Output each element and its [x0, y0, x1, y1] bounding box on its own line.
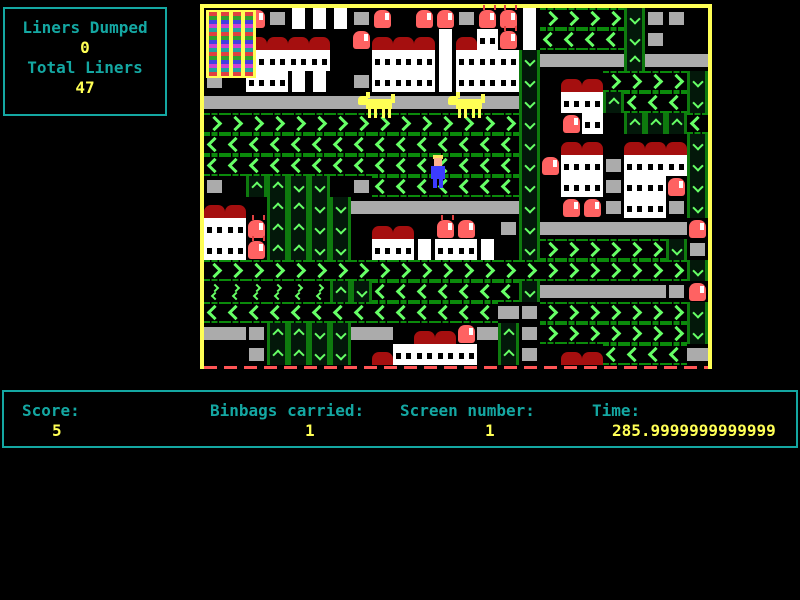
white-column-tile	[288, 71, 309, 92]
conveyor-tile	[666, 218, 687, 239]
white-column-tile	[435, 29, 456, 50]
mini-arrow-tile	[246, 281, 267, 302]
arrow-left-tile	[372, 302, 393, 323]
conveyor-segment-tile	[246, 344, 267, 365]
white-column-tile	[288, 8, 309, 29]
conveyor-segment-tile	[456, 8, 477, 29]
arrow-down-tile	[687, 92, 708, 113]
roof-tile	[372, 218, 393, 239]
arrow-left-tile	[246, 155, 267, 176]
arrow-left-tile	[393, 176, 414, 197]
arrow-left-tile	[414, 281, 435, 302]
arrow-down-tile	[624, 29, 645, 50]
arrow-left-tile	[666, 92, 687, 113]
conveyor-tile	[687, 344, 708, 365]
arrow-down-tile	[687, 176, 708, 197]
roof-tile	[309, 29, 330, 50]
bin-tile	[456, 218, 477, 239]
arrow-left-tile	[498, 155, 519, 176]
roof-tile	[582, 71, 603, 92]
arrow-down-tile	[519, 281, 540, 302]
arrow-down-tile	[519, 239, 540, 260]
arrow-down-tile	[519, 50, 540, 71]
arrow-left-tile	[351, 155, 372, 176]
total-liners-label: Total Liners	[5, 58, 165, 78]
house-window-tile	[582, 155, 603, 176]
arrow-right-tile	[645, 71, 666, 92]
house-window-tile	[393, 71, 414, 92]
house-window-tile	[456, 239, 477, 260]
conveyor-tile	[309, 92, 330, 113]
arrow-right-tile	[645, 239, 666, 260]
time-label: Time:	[592, 401, 640, 420]
house-window-tile	[435, 344, 456, 365]
arrow-down-tile	[624, 8, 645, 29]
conveyor-tile	[204, 92, 225, 113]
mini-arrow-tile	[309, 281, 330, 302]
arrow-down-tile	[309, 197, 330, 218]
arrow-down-tile	[309, 218, 330, 239]
arrow-left-tile	[288, 155, 309, 176]
arrow-right-tile	[582, 8, 603, 29]
arrow-down-tile	[519, 113, 540, 134]
arrow-down-tile	[309, 176, 330, 197]
bin-tile	[456, 323, 477, 344]
conveyor-segment-tile	[246, 323, 267, 344]
arrow-left-tile	[603, 344, 624, 365]
arrow-right-tile	[288, 260, 309, 281]
arrow-down-tile	[687, 260, 708, 281]
arrow-down-tile	[309, 323, 330, 344]
conveyor-segment-tile	[603, 197, 624, 218]
roof-tile	[561, 134, 582, 155]
liners-dumped-value: 0	[5, 38, 165, 58]
arrow-up-tile	[288, 218, 309, 239]
liners-dumped-label: Liners Dumped	[5, 18, 165, 38]
house-window-tile	[645, 197, 666, 218]
arrow-down-tile	[519, 176, 540, 197]
arrow-left-tile	[603, 29, 624, 50]
conveyor-tile	[498, 197, 519, 218]
arrow-right-tile	[561, 239, 582, 260]
arrow-up-tile	[666, 113, 687, 134]
house-window-tile	[477, 29, 498, 50]
bin-tile	[540, 155, 561, 176]
arrow-down-tile	[330, 323, 351, 344]
conveyor-tile	[603, 281, 624, 302]
arrow-left-tile	[246, 134, 267, 155]
house-window-tile	[267, 71, 288, 92]
arrow-right-tile	[561, 302, 582, 323]
house-window-tile	[645, 176, 666, 197]
roof-tile	[225, 197, 246, 218]
player-body	[431, 166, 445, 179]
roof-tile	[456, 29, 477, 50]
arrow-right-tile	[246, 260, 267, 281]
arrow-right-tile	[561, 260, 582, 281]
house-window-tile	[225, 239, 246, 260]
arrow-left-tile	[435, 281, 456, 302]
arrow-left-tile	[477, 155, 498, 176]
arrow-right-tile	[288, 113, 309, 134]
arrow-down-tile	[687, 302, 708, 323]
arrow-left-tile	[330, 155, 351, 176]
white-column-tile	[414, 239, 435, 260]
roof-tile	[561, 71, 582, 92]
arrow-left-tile	[267, 302, 288, 323]
arrow-left-tile	[435, 134, 456, 155]
roof-tile	[372, 344, 393, 365]
arrow-right-tile	[204, 113, 225, 134]
arrow-left-tile	[267, 134, 288, 155]
arrow-down-tile	[666, 239, 687, 260]
conveyor-segment-tile	[519, 344, 540, 365]
house-window-tile	[624, 176, 645, 197]
conveyor-tile	[582, 218, 603, 239]
arrow-right-tile	[540, 260, 561, 281]
roof-tile	[582, 344, 603, 365]
arrow-right-tile	[624, 260, 645, 281]
arrow-up-tile	[645, 113, 666, 134]
arrow-left-tile	[456, 176, 477, 197]
conveyor-segment-tile	[687, 239, 708, 260]
conveyor-tile	[603, 218, 624, 239]
player-sprite	[429, 155, 447, 188]
roof-tile	[393, 29, 414, 50]
arrow-left-tile	[330, 134, 351, 155]
white-column-tile	[309, 8, 330, 29]
arrow-left-tile	[624, 92, 645, 113]
arrow-left-tile	[309, 155, 330, 176]
arrow-left-tile	[288, 134, 309, 155]
bin-with-flies-tile	[477, 8, 498, 29]
roof-tile	[561, 344, 582, 365]
conveyor-tile	[540, 281, 561, 302]
arrow-left-tile	[456, 155, 477, 176]
arrow-right-tile	[309, 113, 330, 134]
arrow-right-tile	[435, 260, 456, 281]
arrow-left-tile	[225, 155, 246, 176]
arrow-right-tile	[645, 323, 666, 344]
arrow-left-tile	[204, 155, 225, 176]
dog-sprite	[448, 92, 488, 118]
roof-tile	[372, 29, 393, 50]
conveyor-segment-tile	[351, 8, 372, 29]
roof-tile	[624, 134, 645, 155]
roof-tile	[204, 197, 225, 218]
house-window-tile	[393, 239, 414, 260]
house-window-tile	[414, 50, 435, 71]
conveyor-tile	[687, 50, 708, 71]
bin-tile	[666, 176, 687, 197]
arrow-right-tile	[225, 260, 246, 281]
arrow-left-tile	[309, 134, 330, 155]
house-window-tile	[309, 50, 330, 71]
white-column-tile	[435, 50, 456, 71]
bin-tile	[351, 29, 372, 50]
arrow-down-tile	[309, 239, 330, 260]
house-window-tile	[582, 176, 603, 197]
arrow-left-tile	[666, 344, 687, 365]
arrow-left-tile	[267, 155, 288, 176]
white-column-tile	[309, 71, 330, 92]
arrow-up-tile	[267, 323, 288, 344]
arrow-up-tile	[288, 344, 309, 365]
arrow-down-tile	[687, 155, 708, 176]
bin-tile	[561, 197, 582, 218]
arrow-right-tile	[309, 260, 330, 281]
bin-tile	[435, 8, 456, 29]
arrow-left-tile	[498, 176, 519, 197]
arrow-right-tile	[519, 260, 540, 281]
arrow-right-tile	[330, 260, 351, 281]
house-window-tile	[393, 344, 414, 365]
arrow-up-tile	[498, 323, 519, 344]
house-window-tile	[666, 155, 687, 176]
house-window-tile	[225, 218, 246, 239]
game-board[interactable]	[200, 4, 712, 369]
arrow-left-tile	[477, 134, 498, 155]
house-window-tile	[204, 239, 225, 260]
roof-tile	[288, 29, 309, 50]
liners-dumped-panel: Liners Dumped 0 Total Liners 47	[3, 7, 167, 116]
arrow-right-tile	[498, 113, 519, 134]
white-column-tile	[330, 8, 351, 29]
bin-tile	[687, 218, 708, 239]
arrow-down-tile	[330, 344, 351, 365]
house-window-tile	[561, 155, 582, 176]
arrow-right-tile	[603, 260, 624, 281]
arrow-left-tile	[372, 281, 393, 302]
arrow-right-tile	[393, 260, 414, 281]
house-window-tile	[414, 71, 435, 92]
arrow-left-tile	[372, 155, 393, 176]
arrow-left-tile	[204, 134, 225, 155]
house-window-tile	[624, 155, 645, 176]
arrow-left-tile	[204, 302, 225, 323]
arrow-right-tile	[267, 260, 288, 281]
arrow-right-tile	[372, 260, 393, 281]
conveyor-tile	[603, 50, 624, 71]
arrow-right-tile	[477, 260, 498, 281]
arrow-left-tile	[288, 302, 309, 323]
white-column-tile	[435, 71, 456, 92]
arrow-down-tile	[309, 344, 330, 365]
arrow-down-tile	[288, 176, 309, 197]
score-value: 5	[52, 421, 62, 440]
arrow-up-tile	[246, 176, 267, 197]
conveyor-tile	[666, 50, 687, 71]
house-window-tile	[435, 239, 456, 260]
arrow-down-tile	[687, 134, 708, 155]
arrow-right-tile	[561, 323, 582, 344]
conveyor-tile	[372, 197, 393, 218]
bin-tile	[372, 8, 393, 29]
roof-tile	[645, 134, 666, 155]
bin-with-flies-tile	[435, 218, 456, 239]
conveyor-tile	[225, 323, 246, 344]
arrow-right-tile	[624, 239, 645, 260]
arrow-up-tile	[288, 197, 309, 218]
arrow-up-tile	[288, 323, 309, 344]
arrow-down-tile	[519, 134, 540, 155]
conveyor-segment-tile	[603, 176, 624, 197]
conveyor-tile	[267, 92, 288, 113]
arrow-right-tile	[624, 302, 645, 323]
conveyor-tile	[372, 323, 393, 344]
house-window-tile	[204, 218, 225, 239]
roof-tile	[267, 29, 288, 50]
conveyor-tile	[582, 281, 603, 302]
arrow-right-tile	[561, 8, 582, 29]
house-window-tile	[456, 344, 477, 365]
conveyor-segment-tile	[666, 281, 687, 302]
white-column-tile	[519, 8, 540, 29]
arrow-right-tile	[582, 323, 603, 344]
bin-with-flies-tile	[246, 239, 267, 260]
white-column-tile	[519, 29, 540, 50]
mini-arrow-tile	[225, 281, 246, 302]
conveyor-segment-tile	[204, 176, 225, 197]
arrow-down-tile	[330, 197, 351, 218]
arrow-left-tile	[477, 302, 498, 323]
arrow-right-tile	[582, 239, 603, 260]
bin-tile	[687, 281, 708, 302]
arrow-left-tile	[309, 302, 330, 323]
conveyor-tile	[351, 197, 372, 218]
arrow-left-tile	[477, 281, 498, 302]
conveyor-tile	[225, 92, 246, 113]
arrow-left-tile	[645, 92, 666, 113]
arrow-left-tile	[393, 134, 414, 155]
arrow-right-tile	[666, 323, 687, 344]
house-window-tile	[393, 50, 414, 71]
arrow-right-tile	[603, 302, 624, 323]
conveyor-tile	[582, 50, 603, 71]
arrow-left-tile	[456, 302, 477, 323]
conveyor-tile	[246, 92, 267, 113]
conveyor-tile	[498, 302, 519, 323]
arrow-down-tile	[687, 71, 708, 92]
arrow-left-tile	[330, 302, 351, 323]
conveyor-tile	[645, 50, 666, 71]
arrow-right-tile	[645, 260, 666, 281]
house-window-tile	[372, 71, 393, 92]
house-window-tile	[561, 92, 582, 113]
conveyor-tile	[351, 323, 372, 344]
conveyor-tile	[561, 218, 582, 239]
arrow-down-tile	[519, 197, 540, 218]
conveyor-tile	[477, 323, 498, 344]
conveyor-tile	[477, 197, 498, 218]
arrow-left-tile	[624, 344, 645, 365]
house-window-tile	[624, 197, 645, 218]
arrow-down-tile	[519, 71, 540, 92]
conveyor-segment-tile	[645, 8, 666, 29]
binbags-label: Binbags carried:	[210, 401, 364, 420]
arrow-right-tile	[624, 71, 645, 92]
arrow-left-tile	[498, 134, 519, 155]
arrow-left-tile	[414, 302, 435, 323]
arrow-down-tile	[519, 218, 540, 239]
conveyor-tile	[330, 92, 351, 113]
arrow-right-tile	[666, 302, 687, 323]
conveyor-segment-tile	[351, 71, 372, 92]
conveyor-tile	[561, 281, 582, 302]
arrow-up-tile	[603, 92, 624, 113]
arrow-right-tile	[624, 323, 645, 344]
conveyor-segment-tile	[519, 323, 540, 344]
arrow-left-tile	[561, 29, 582, 50]
roof-tile	[393, 218, 414, 239]
score-label: Score:	[22, 401, 80, 420]
arrow-down-tile	[330, 218, 351, 239]
arrow-left-tile	[246, 302, 267, 323]
conveyor-segment-tile	[519, 302, 540, 323]
conveyor-tile	[414, 197, 435, 218]
conveyor-tile	[498, 92, 519, 113]
roof-tile	[414, 323, 435, 344]
arrow-left-tile	[582, 29, 603, 50]
arrow-right-tile	[666, 260, 687, 281]
screen-number-value: 1	[485, 421, 495, 440]
arrow-up-tile	[498, 344, 519, 365]
conveyor-tile	[624, 218, 645, 239]
arrow-up-tile	[267, 176, 288, 197]
conveyor-segment-tile	[666, 197, 687, 218]
arrow-right-tile	[540, 239, 561, 260]
arrow-right-tile	[246, 113, 267, 134]
bin-tile	[561, 113, 582, 134]
mini-arrow-tile	[288, 281, 309, 302]
arrow-right-tile	[666, 71, 687, 92]
house-window-tile	[561, 176, 582, 197]
arrow-right-tile	[603, 8, 624, 29]
house-window-tile	[456, 71, 477, 92]
house-window-tile	[498, 50, 519, 71]
arrow-left-tile	[372, 134, 393, 155]
arrow-right-tile	[267, 113, 288, 134]
arrow-left-tile	[456, 134, 477, 155]
arrow-down-tile	[687, 323, 708, 344]
arrow-right-tile	[204, 260, 225, 281]
conveyor-segment-tile	[645, 29, 666, 50]
arrow-up-tile	[288, 239, 309, 260]
conveyor-segment-tile	[498, 218, 519, 239]
roof-tile	[414, 29, 435, 50]
house-window-tile	[582, 92, 603, 113]
conveyor-tile	[414, 92, 435, 113]
arrow-up-tile	[624, 113, 645, 134]
conveyor-tile	[645, 218, 666, 239]
house-window-tile	[372, 239, 393, 260]
house-window-tile	[267, 50, 288, 71]
bin-with-flies-tile	[498, 29, 519, 50]
conveyor-tile	[456, 197, 477, 218]
arrow-right-tile	[414, 113, 435, 134]
conveyor-tile	[393, 197, 414, 218]
screen-number-label: Screen number:	[400, 401, 535, 420]
mini-arrow-tile	[267, 281, 288, 302]
flats-building	[206, 10, 256, 78]
arrow-down-tile	[351, 281, 372, 302]
arrow-right-tile	[582, 302, 603, 323]
arrow-down-tile	[687, 197, 708, 218]
arrow-down-tile	[519, 155, 540, 176]
arrow-left-tile	[498, 281, 519, 302]
total-liners-value: 47	[5, 78, 165, 98]
conveyor-tile	[624, 281, 645, 302]
